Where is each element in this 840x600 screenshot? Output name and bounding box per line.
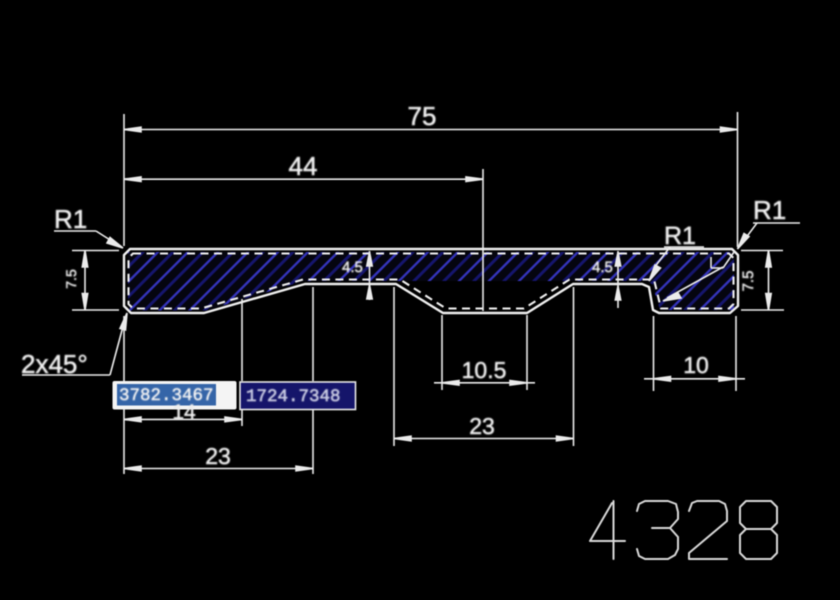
- svg-text:10.5: 10.5: [462, 357, 507, 383]
- svg-text:R1: R1: [753, 195, 786, 225]
- svg-text:44: 44: [289, 151, 318, 181]
- svg-text:7.5: 7.5: [740, 271, 757, 292]
- svg-text:4.5: 4.5: [342, 259, 363, 276]
- svg-text:7.5: 7.5: [63, 269, 79, 289]
- svg-text:R1: R1: [54, 204, 87, 234]
- svg-text:14: 14: [172, 401, 196, 424]
- svg-text:R1: R1: [664, 222, 696, 250]
- svg-text:4.5: 4.5: [592, 259, 613, 276]
- svg-text:23: 23: [469, 413, 495, 439]
- svg-text:3782.3467: 3782.3467: [119, 386, 214, 406]
- svg-text:75: 75: [408, 101, 437, 131]
- svg-text:2x45°: 2x45°: [21, 349, 88, 379]
- svg-text:1724.7348: 1724.7348: [246, 387, 341, 407]
- svg-text:23: 23: [205, 443, 231, 469]
- svg-text:10: 10: [683, 352, 709, 378]
